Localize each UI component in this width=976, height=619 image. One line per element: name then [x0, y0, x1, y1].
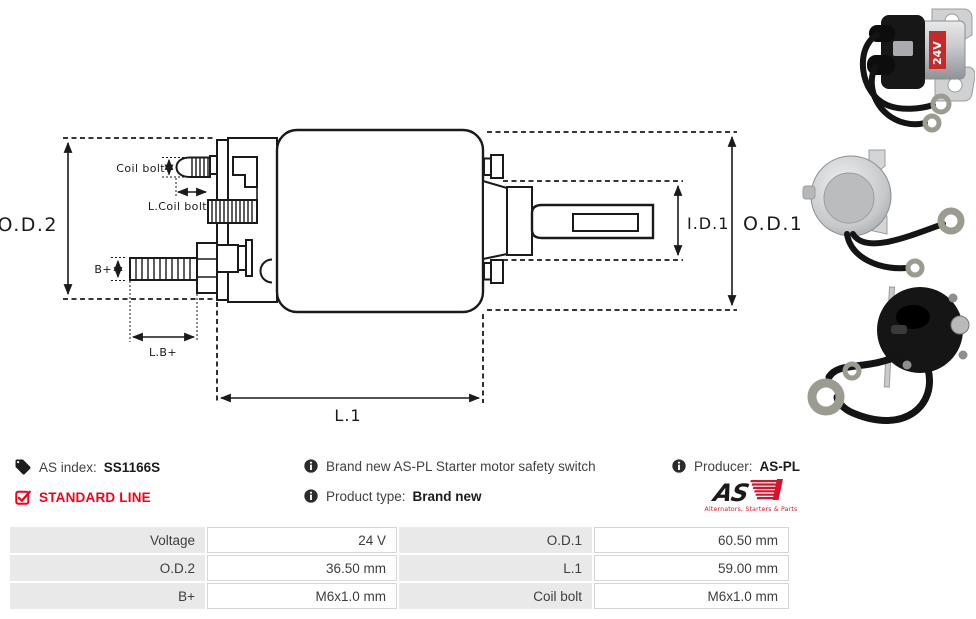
product-type-label: Product type:	[326, 489, 406, 504]
l1-guides	[217, 302, 483, 403]
producer-item: Producer: AS-PL	[671, 458, 800, 474]
as-pl-logo-caption: Alternators, Starters & Parts	[705, 506, 798, 513]
checkbox-checked-icon	[14, 488, 32, 506]
producer-label: Producer:	[694, 459, 753, 474]
spec-label: Voltage	[10, 527, 205, 553]
spec-label: O.D.2	[10, 555, 205, 581]
spec-label: Coil bolt	[399, 583, 592, 609]
as-index-item: AS index: SS1166S	[14, 458, 160, 476]
coil-bolt-drawing	[177, 158, 211, 178]
spec-table: Voltage 24 V O.D.1 60.50 mm O.D.2 36.50 …	[10, 527, 789, 609]
spec-value: 60.50 mm	[594, 527, 789, 553]
metal-cap	[803, 156, 891, 236]
product-type-item: Product type: Brand new	[303, 488, 482, 504]
spec-label: L.1	[399, 555, 592, 581]
coil-bolt-label: Coil bolt	[116, 162, 165, 175]
standard-line-item: STANDARD LINE	[14, 488, 151, 506]
as-index-value: SS1166S	[104, 460, 160, 475]
spec-value: 24 V	[207, 527, 397, 553]
as-pl-logo-mark: AS	[709, 479, 783, 507]
solenoid-body	[277, 130, 483, 312]
l1-label: L.1	[334, 406, 361, 425]
product-photo-rear	[795, 285, 976, 447]
spec-value: M6x1.0 mm	[207, 583, 397, 609]
product-photo-side: 24V	[835, 5, 975, 137]
as-pl-logo: AS Alternators, Starters & Parts	[703, 479, 798, 515]
standard-line-label: STANDARD LINE	[39, 490, 151, 505]
info-icon	[671, 458, 687, 474]
spec-label: B+	[10, 583, 205, 609]
id1-label: I.D.1	[687, 214, 729, 233]
ring-terminals	[908, 211, 961, 275]
technical-drawing: O.D.2 Coil bolt L.Coil bolt B+ L.B+ I.D.…	[0, 100, 800, 440]
od1-label: O.D.1	[743, 213, 800, 235]
voltage-badge-text: 24V	[931, 41, 944, 65]
l-b-plus-label: L.B+	[149, 346, 177, 359]
description-item: Brand new AS-PL Starter motor safety swi…	[303, 458, 596, 474]
black-cap	[867, 15, 925, 89]
od2-label: O.D.2	[0, 214, 58, 236]
plunger-shaft	[483, 181, 653, 259]
product-datasheet: O.D.2 Coil bolt L.Coil bolt B+ L.B+ I.D.…	[0, 0, 976, 619]
as-index-label: AS index:	[39, 460, 97, 475]
spec-label: O.D.1	[399, 527, 592, 553]
info-icon	[303, 458, 319, 474]
spec-value: M6x1.0 mm	[594, 583, 789, 609]
as-pl-logo-text: AS	[709, 479, 751, 507]
spec-value: 36.50 mm	[207, 555, 397, 581]
description-text: Brand new AS-PL Starter motor safety swi…	[326, 459, 596, 474]
b-plus-ticks	[111, 258, 127, 281]
product-photo-cap	[795, 142, 976, 280]
l-b-plus-guides	[130, 281, 197, 342]
spec-value: 59.00 mm	[594, 555, 789, 581]
product-type-value: Brand new	[413, 489, 482, 504]
coil-thread-collar	[208, 200, 257, 223]
tag-icon	[14, 458, 32, 476]
info-icon	[303, 488, 319, 504]
producer-value: AS-PL	[760, 459, 801, 474]
l-coil-bolt-label: L.Coil bolt	[148, 200, 207, 213]
b-plus-label: B+	[94, 263, 112, 276]
